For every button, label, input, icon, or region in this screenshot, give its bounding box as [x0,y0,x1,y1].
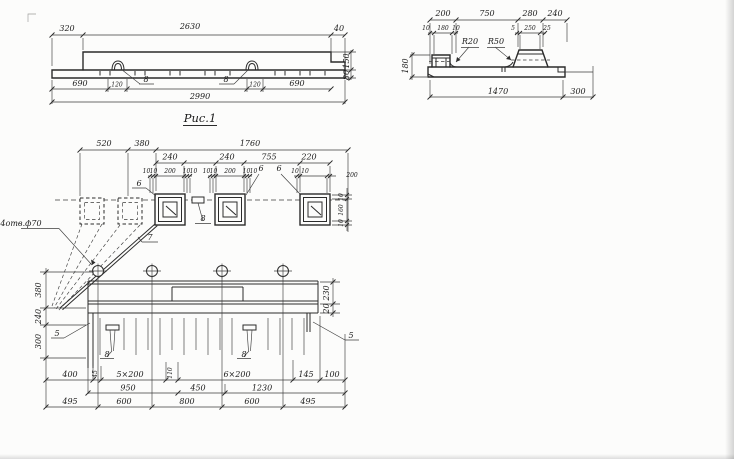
dim-10-b: 10 [452,25,460,32]
dim-690-right: 690 [289,79,304,88]
dim-950: 950 [120,384,135,393]
dim-750: 750 [479,9,494,18]
pos8-elev-right: 8 [241,350,246,359]
dim-1230: 1230 [252,384,272,393]
dim-300: 300 [570,87,585,96]
pos-callout-8-right: 8 [223,75,228,84]
dim-120-right: 120 [249,82,261,89]
dim-600-a: 600 [116,397,131,406]
plan-band-outline [88,281,318,313]
pos7-label: 7 [147,233,153,242]
dim-1760: 1760 [240,139,260,148]
dim-80: 80 [342,70,351,80]
dim-380-v: 380 [34,282,43,297]
radius-arrowheads [456,56,511,63]
dim-s2-10b: 10 [210,168,218,175]
scanned-drawing-page: 320 2630 40 690 120 120 690 8 8 2990 150… [0,0,734,459]
wall-extension-lines [150,178,327,193]
hidden-pocket-2-outer [118,198,142,224]
plate-joint-ticks [100,71,325,76]
right-rib-outline [513,50,548,67]
dim-495-a: 495 [61,397,77,406]
dim-s3-200: 200 [345,172,358,179]
bottom-extension-lines [88,316,345,408]
dim-10-a: 10 [422,25,430,32]
dim-s1-10b: 10 [150,168,158,175]
pos8-elev-left: 8 [104,350,109,359]
hidden-pocket-1-outer [80,198,104,224]
elevation-bar-strokes [100,318,304,355]
lifting-loop-right [246,61,258,70]
dim-400: 400 [61,370,77,379]
dim-180-height: 180 [401,58,410,73]
dim-6x200: 6×200 [223,370,250,379]
dim-450: 450 [189,384,205,393]
left-rib-inner [432,58,450,67]
dim-495-b: 495 [299,397,315,406]
pos7-diagonal-element [60,224,157,310]
left-rib-outline [432,55,450,67]
dim-240: 240 [546,9,562,18]
scan-edge-bottom [0,454,734,459]
dim-s2-10d: 10 [250,168,258,175]
beam-elevation-view: 320 2630 40 690 120 120 690 8 8 2990 150… [28,14,356,126]
dim-220: 220 [300,153,316,162]
dim-240-v: 240 [34,309,43,325]
pos6-label-1: 6 [136,179,141,188]
pos6-label-3: 6 [276,164,281,173]
pos8-tab [192,197,204,203]
dim-40: 40 [333,24,344,33]
pos8-plan-label: 8 [200,214,205,223]
dim-5x200: 5×200 [116,370,143,379]
dim-1470: 1470 [488,87,508,96]
dim-100: 100 [324,370,339,379]
beam-plate-outline [52,70,345,78]
dim-755: 755 [261,153,276,162]
corner-artifact [28,14,36,22]
pos5-leaders [51,322,359,340]
dim-180-wall: 180 [437,25,449,32]
anchor-plate-left [106,325,119,330]
pos5-label-left: 5 [54,329,59,338]
figure-caption: Рис.1 [183,111,217,125]
dim-s1-200: 200 [163,168,176,175]
section-plate-outline [428,67,565,77]
pos5-label-right: 5 [348,331,353,340]
dim-690-left: 690 [72,79,87,88]
holes-note-leader [21,229,92,266]
dim-2990: 2990 [189,92,210,101]
rib-fillets [450,62,513,67]
dim-25: 25 [542,25,551,32]
dim-520: 520 [96,139,111,148]
drawing-canvas: 320 2630 40 690 120 120 690 8 8 2990 150… [0,0,734,459]
radius-r50: R50 [487,37,504,46]
hole-crosshairs [89,264,292,279]
dim-150: 150 [342,53,351,68]
scan-edge-right [725,0,734,459]
dim-800: 800 [179,397,194,406]
dim-200: 200 [434,9,450,18]
dim-s3-10b: 10 [301,168,309,175]
elevation-edges [88,281,310,368]
beam-cross-section-view: 200 750 280 240 10 180 10 5 250 25 R20 R… [401,9,596,100]
dim-280: 280 [521,9,537,18]
dim-600-b: 600 [244,397,259,406]
plan-recess [172,287,243,301]
dim-s3-10a: 10 [291,168,299,175]
dim-45: 45 [92,370,99,379]
dim-300-v: 300 [34,334,43,349]
dim-sq3-160: 160 [338,204,345,216]
dim-250: 250 [523,25,536,32]
pos-callout-8-left: 8 [143,75,148,84]
beam-slab-outline [83,52,345,70]
dim-110: 110 [167,367,174,379]
anchor-plate-right [243,325,256,330]
dim-2630: 2630 [179,22,200,31]
dim-s1-10d: 10 [190,168,198,175]
pos6-label-2: 6 [258,164,263,173]
lifting-loop-left [112,61,124,70]
detail-plan-view: 520 380 1760 240 240 755 220 10 10 200 1… [0,139,359,410]
radius-r20: R20 [461,37,478,46]
hole-marks [89,264,292,279]
dim-120-left: 120 [111,82,123,89]
dim-5: 5 [511,25,515,32]
rib-dashed-lines [429,60,550,62]
dim-20-v: 20 [322,303,331,314]
plate-step-and-joints [428,67,565,77]
dim-145: 145 [298,370,313,379]
dim-sq3-10-top: 10 [338,193,345,201]
radius-leaders [456,47,511,62]
pos6-leaders [132,174,301,196]
dim-230-v: 230 [322,285,331,301]
dim-240-b: 240 [218,153,234,162]
dim-sq3-10-bottom: 10 [338,219,345,227]
holes-note: 4отв.ф70 [0,219,42,228]
dim-s2-200: 200 [223,168,236,175]
dim-320: 320 [59,24,74,33]
dim-240-a: 240 [161,153,177,162]
dim-380: 380 [134,139,149,148]
